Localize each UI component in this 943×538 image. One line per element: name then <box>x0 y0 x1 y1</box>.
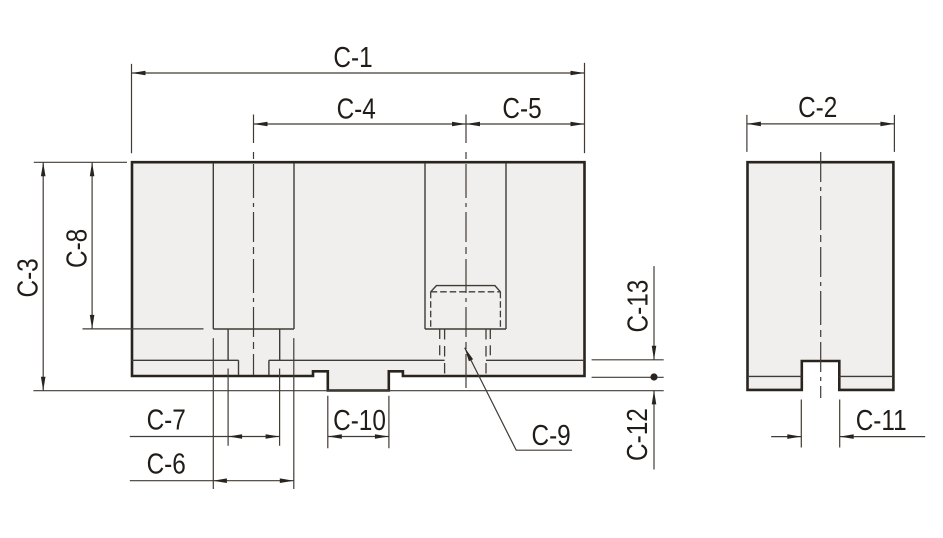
svg-text:C-2: C-2 <box>798 91 837 123</box>
svg-text:C-12: C-12 <box>621 408 653 461</box>
svg-text:C-10: C-10 <box>333 404 386 436</box>
svg-text:C-3: C-3 <box>11 258 43 297</box>
svg-text:C-5: C-5 <box>502 92 541 124</box>
svg-text:C-7: C-7 <box>147 404 186 436</box>
svg-text:C-9: C-9 <box>531 419 570 451</box>
svg-text:C-11: C-11 <box>856 404 907 436</box>
svg-text:C-1: C-1 <box>333 41 372 73</box>
svg-text:C-13: C-13 <box>621 280 653 333</box>
svg-text:C-4: C-4 <box>337 92 376 124</box>
svg-text:C-6: C-6 <box>147 448 186 480</box>
svg-text:C-8: C-8 <box>61 229 93 268</box>
